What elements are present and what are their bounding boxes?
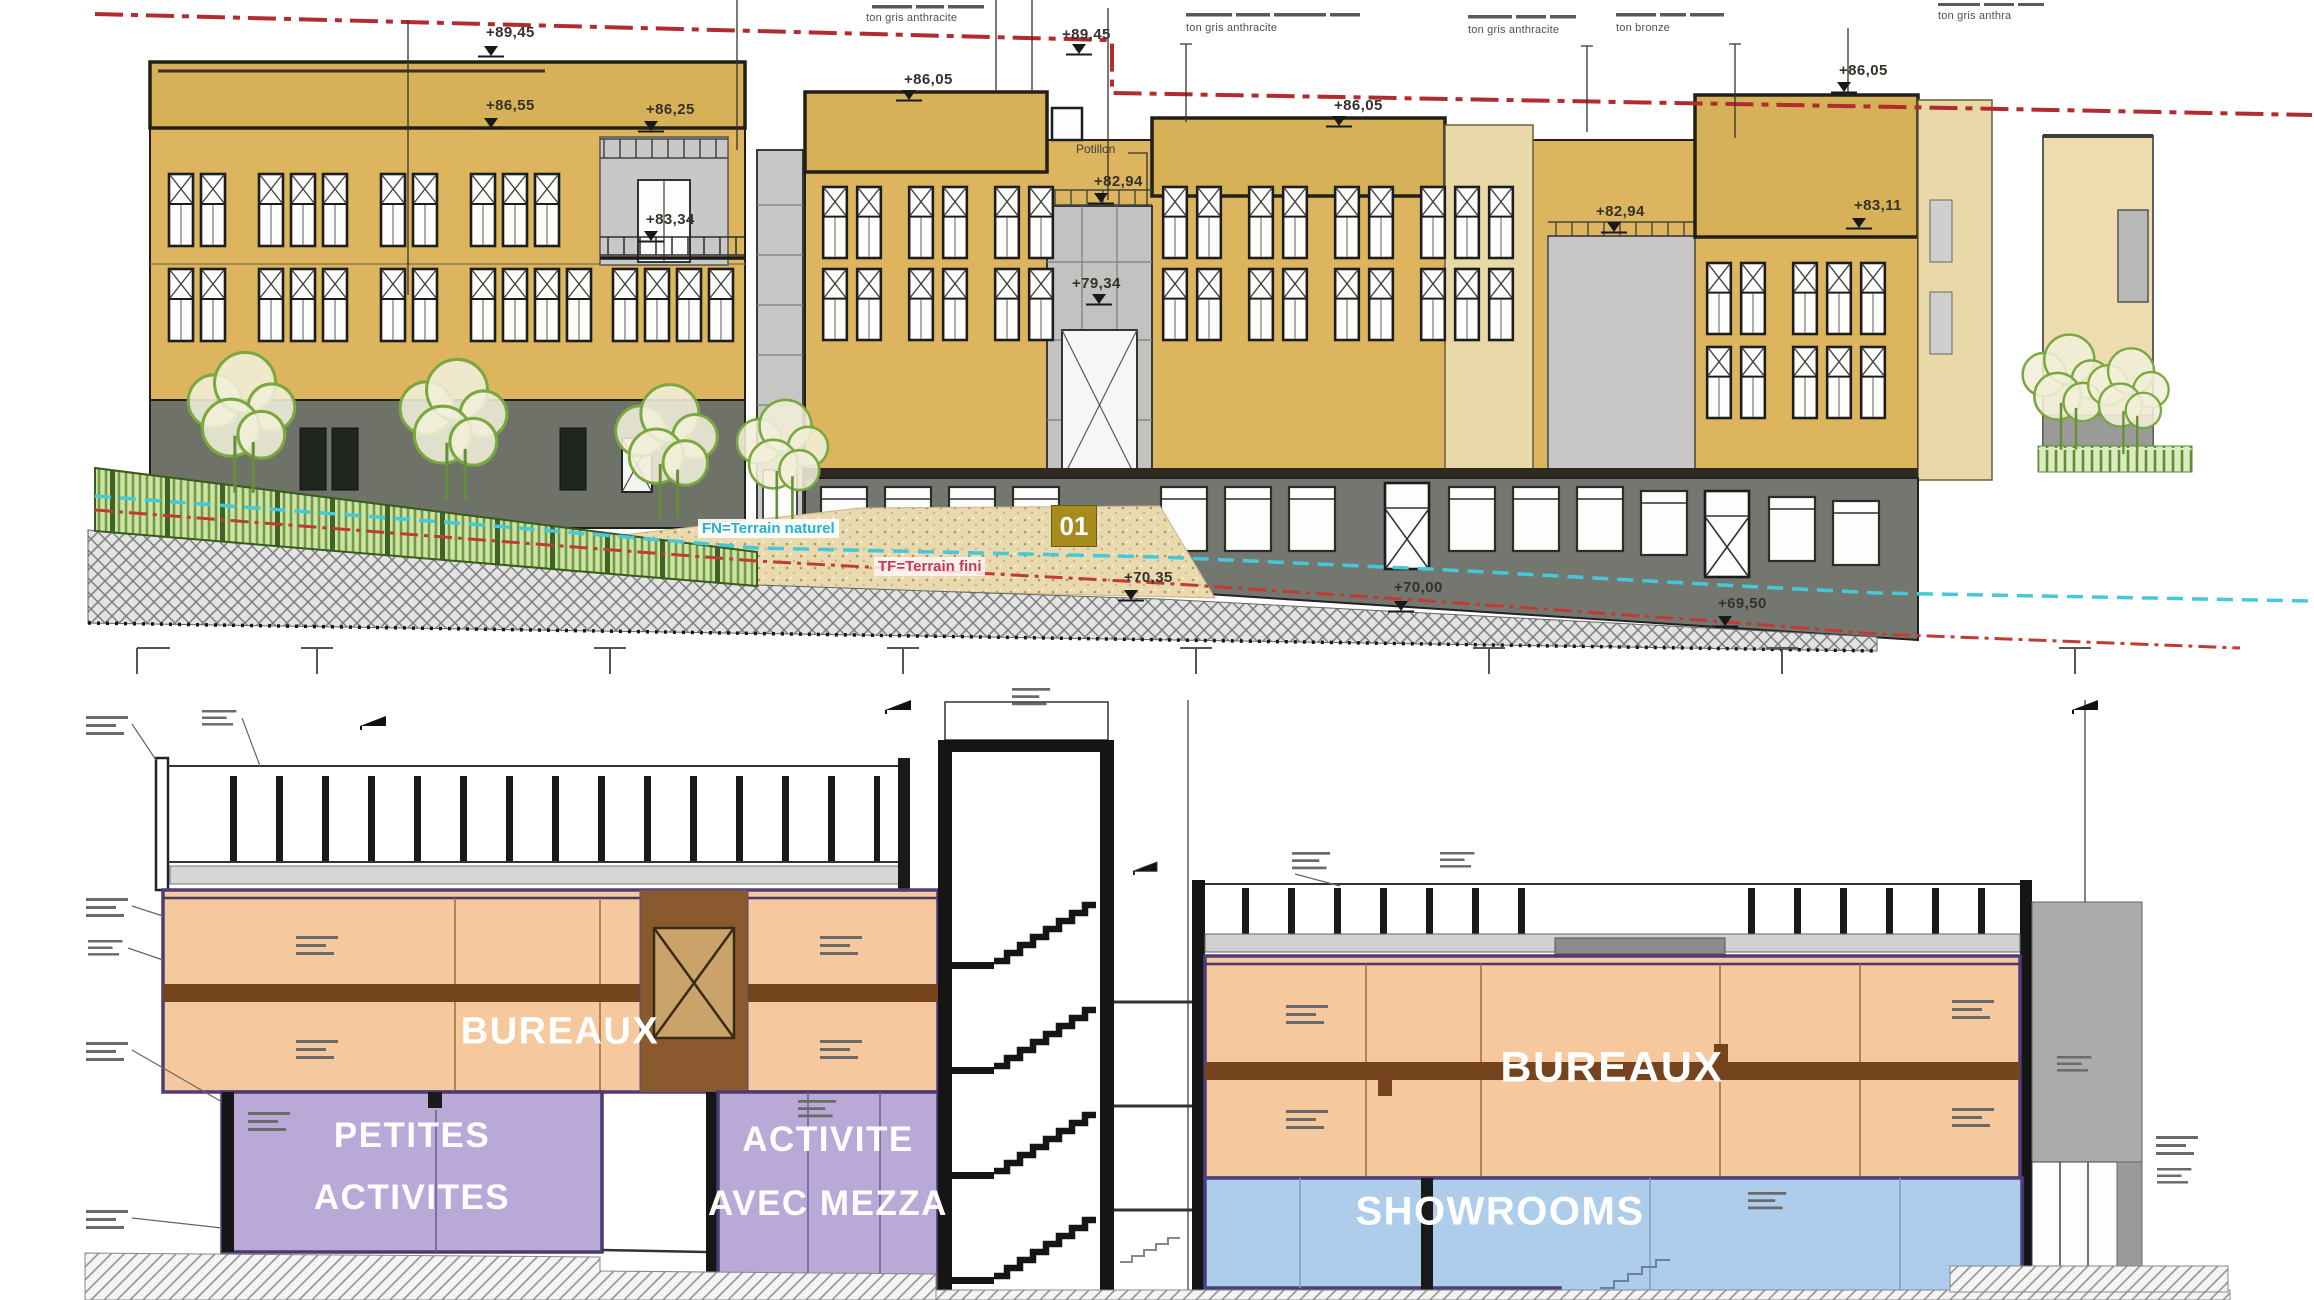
zone-label-showrooms: SHOWROOMS [1355, 1190, 1644, 1235]
zone-label-activite-2: AVEC MEZZA [708, 1184, 948, 1224]
architectural-drawing-sheet: +89,45 +89,45 +86,55 +86,25 +83,34 +86,0… [0, 0, 2314, 1300]
elevation-level-label: +69,50 [1718, 595, 1767, 612]
terrain-natural-label: FN=Terrain naturel [698, 519, 839, 538]
material-note: ton gris anthracite [1186, 22, 1277, 34]
zone-label-bureaux-right: BUREAUX [1500, 1044, 1723, 1093]
elevation-level-label: +86,05 [904, 71, 953, 88]
elevation-level-label: +82,94 [1094, 173, 1143, 190]
elevation-level-label: +86,05 [1839, 62, 1888, 79]
elevation-level-label: +70,35 [1124, 569, 1173, 586]
section-gap [1114, 700, 1205, 1290]
adjacent-building-gray [2032, 700, 2198, 1266]
elevation-level-label: +86,25 [646, 101, 695, 118]
section-cut-marker: 01 [1051, 505, 1097, 547]
zone-label-petites-1: PETITES [334, 1116, 490, 1156]
material-note: ton gris anthracite [866, 12, 957, 24]
drawing-graphics [0, 0, 2314, 1300]
elevation-level-label: +70,00 [1394, 579, 1443, 596]
zone-label-petites-2: ACTIVITES [314, 1178, 510, 1218]
section-left-roof [156, 700, 911, 890]
zone-label-activite-1: ACTIVITE [742, 1120, 913, 1160]
elevation-level-label: +89,45 [1062, 26, 1111, 43]
stair-core [938, 688, 1114, 1298]
elevation-level-label: +86,55 [486, 97, 535, 114]
terrain-finished-label: TF=Terrain fini [874, 557, 985, 576]
material-note: ton gris anthracite [1468, 24, 1559, 36]
potillon-callout: Potillon [1076, 142, 1115, 156]
elevation-level-label: +83,34 [646, 211, 695, 228]
elevation-level-label: +89,45 [486, 24, 535, 41]
elevation-level-label: +82,94 [1596, 203, 1645, 220]
zone-bureaux-left [163, 890, 938, 1092]
material-note: ton gris anthra [1938, 10, 2011, 22]
elevation-drawing [88, 0, 2312, 674]
zone-label-bureaux-left: BUREAUX [461, 1011, 659, 1054]
material-note-bars [872, 3, 2044, 19]
material-note: ton bronze [1616, 22, 1670, 34]
elevation-level-label: +79,34 [1072, 275, 1121, 292]
elevation-level-label: +86,05 [1334, 97, 1383, 114]
elevation-level-label: +83,11 [1854, 197, 1902, 214]
grid-ticks [137, 648, 2091, 674]
